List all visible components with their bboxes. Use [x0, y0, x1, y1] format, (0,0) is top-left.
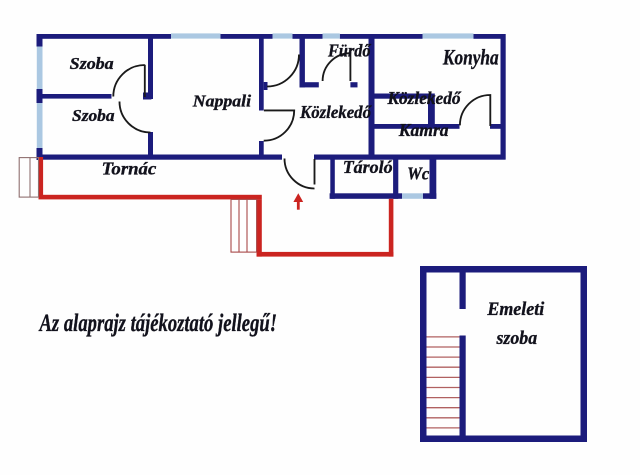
svg-text:Emeleti: Emeleti: [486, 300, 545, 320]
svg-text:Tároló: Tároló: [343, 157, 393, 177]
svg-text:Kamra: Kamra: [398, 120, 449, 140]
svg-text:Szoba: Szoba: [72, 106, 115, 125]
svg-text:Fürdő: Fürdő: [327, 41, 372, 61]
svg-text:Wc: Wc: [407, 164, 429, 184]
svg-text:szoba: szoba: [495, 329, 537, 349]
svg-text:Közlekedő: Közlekedő: [387, 88, 462, 108]
svg-text:Szoba: Szoba: [70, 54, 114, 73]
svg-text:Közlekedő: Közlekedő: [299, 102, 372, 122]
svg-text:Konyha: Konyha: [442, 45, 499, 70]
svg-text:Nappali: Nappali: [192, 92, 252, 111]
svg-text:Az alaprajz tájékoztató jelleg: Az alaprajz tájékoztató jellegű!: [38, 310, 277, 337]
svg-text:Tornác: Tornác: [102, 158, 157, 178]
